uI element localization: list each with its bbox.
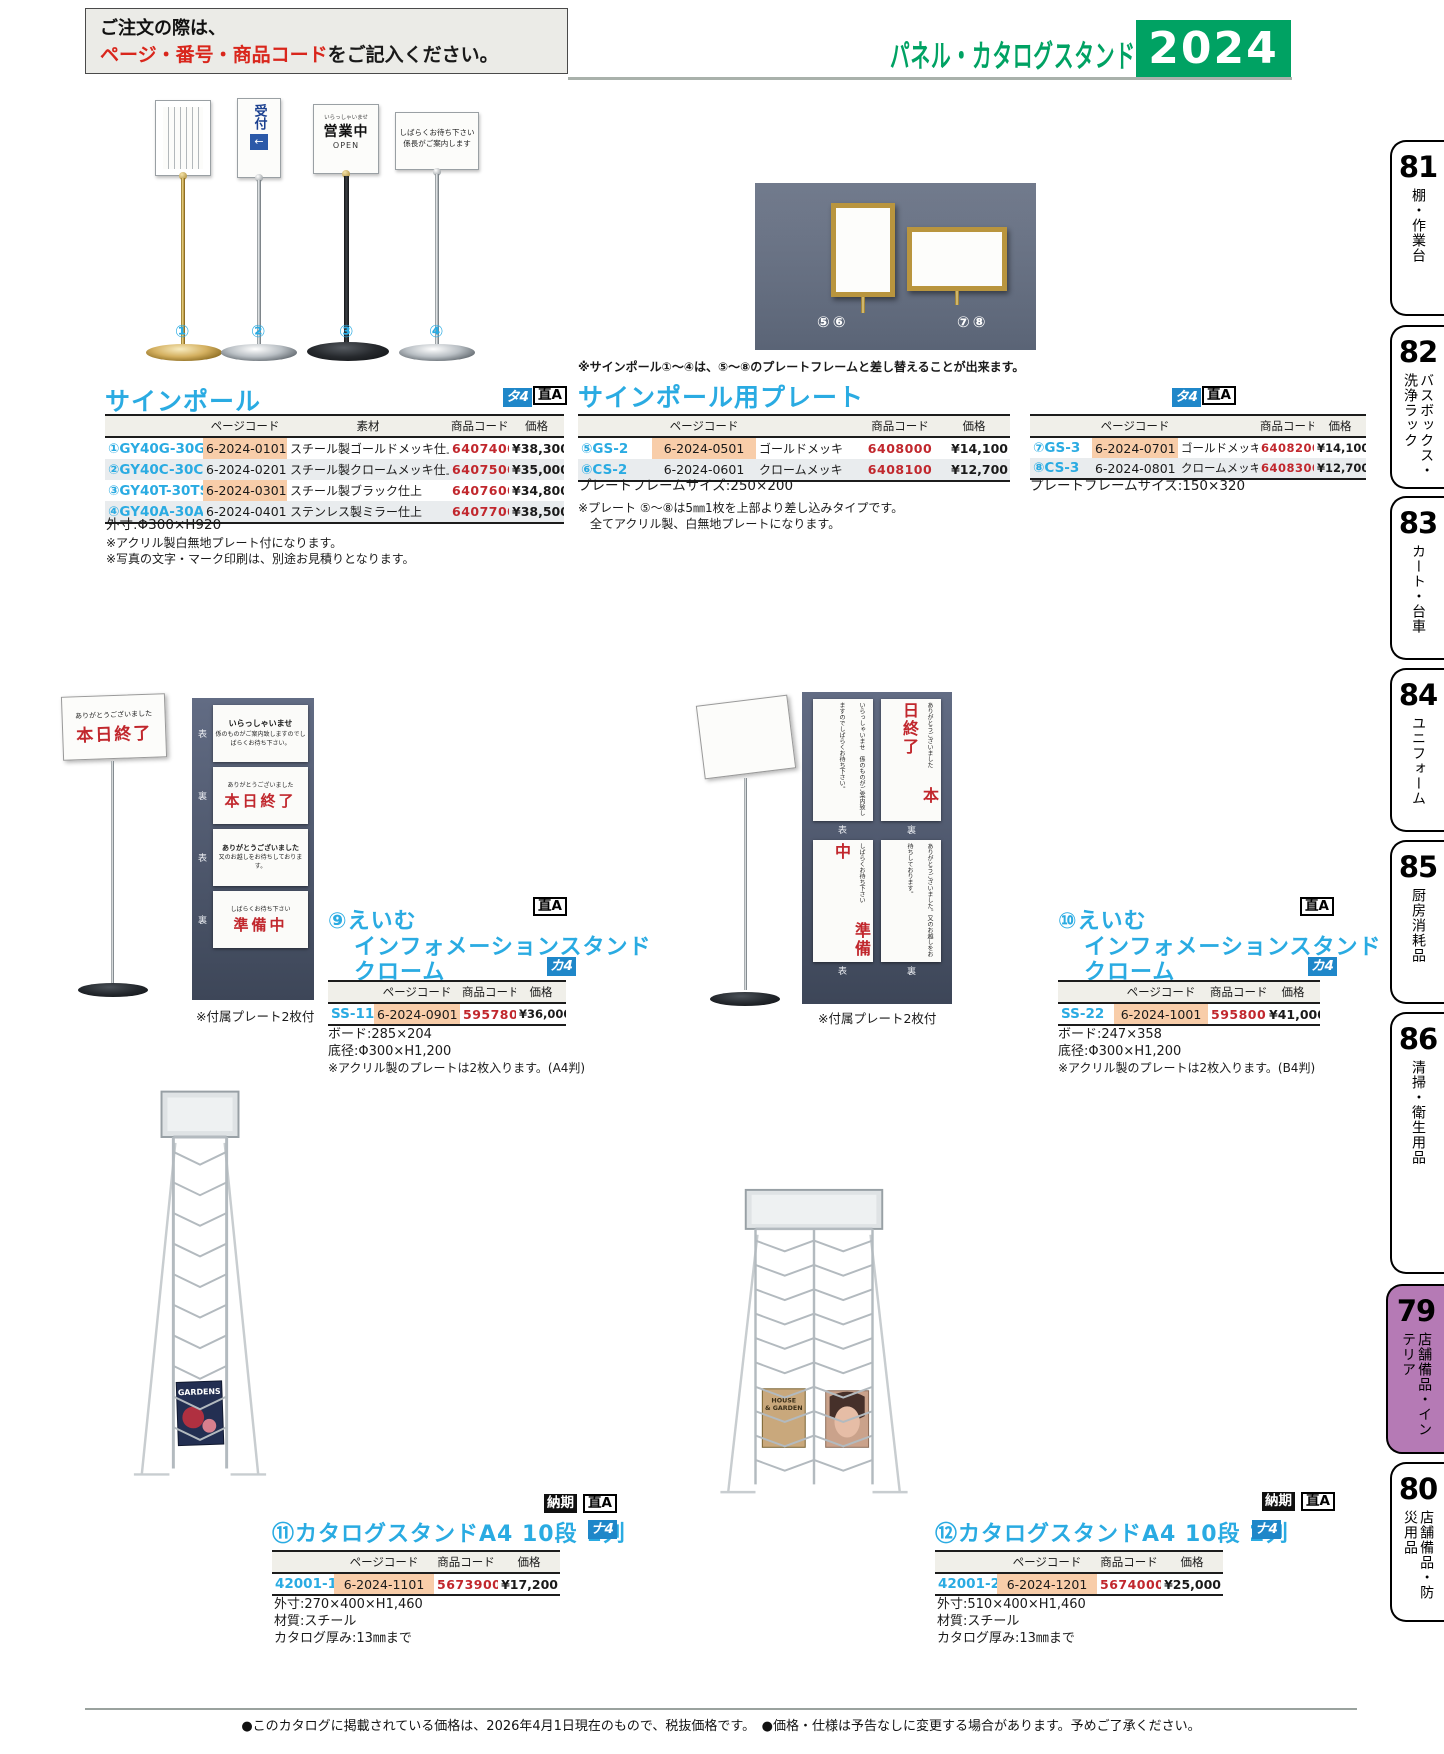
footer-disclaimer: ●このカタログに掲載されている価格は、2026年4月1日現在のもので、税抜価格で… [85,1715,1357,1734]
magazine-cover: GARDENS [176,1381,224,1446]
plate-4-line1: しばらくお待ち下さい [396,127,478,138]
col-blank [1030,415,1092,437]
col-page-code: ページコード [374,981,460,1003]
col-blank [756,415,862,437]
order-instruction-tail: をご記入ください。 [328,44,499,66]
signpole-plate-1 [155,100,211,176]
base-chrome [221,344,297,361]
side-label: 裏 [907,823,916,836]
tab-label: 店舗備品・防災用品 [1402,1510,1434,1614]
gold-frame-landscape [907,227,1007,291]
item-code: 6408300 [1258,458,1314,479]
catalog-index-badge: カ4 [547,957,576,976]
price: ¥38,300 [509,437,564,459]
board-plate: ありがとうございました 本日終了 [213,767,308,824]
plate-small-text: ありがとうございました。又のお越しをお待ちしております。 [906,843,933,957]
col-item-code: 商品コード [449,415,509,437]
board-plate: しばらくお待ち下さい 準備中 [213,891,308,948]
table-header-row: ページコード 素材 商品コード 価格 [105,415,564,437]
info10-table: ページコード 商品コード 価格 SS-22 6-2024-1001 595800… [1058,980,1320,1026]
board-plate-vertical: いらっしゃいませ 係のものがご案内致しますのでしばらくお待ち下さい。 [813,699,873,821]
col-blank [272,1551,334,1573]
plates-table-right: ページコード 商品コード 価格 ⑦GS-3 6-2024-0701 ゴールドメッ… [1030,414,1366,480]
side-label: 表 [838,964,847,977]
plate-small-text: いらっしゃいませ 係のものがご案内致しますのでしばらくお待ち下さい。 [838,702,865,816]
plate-product-photo: ⑤⑥ ⑦⑧ [755,183,1036,350]
footer-divider [85,1708,1357,1710]
table-row: ⑦GS-3 6-2024-0701 ゴールドメッキ 6408200 ¥14,10… [1030,437,1366,458]
price: ¥41,000 [1266,1003,1320,1025]
model-code: ⑧CS-3 [1030,458,1092,479]
model-code: SS-22 [1058,1003,1114,1025]
item-code: 6408200 [1258,437,1314,458]
note: ※写真の文字・マーク印刷は、別途お見積りとなります。 [106,551,415,568]
col-blank [105,415,203,437]
gold-frame-portrait [831,203,895,297]
plate-3-line2: 営業中 [314,121,378,141]
col-page-code: ページコード [1092,415,1178,437]
col-price: 価格 [1161,1551,1223,1573]
side-label: 表 [838,823,847,836]
direct-delivery-badge: 直A [1301,1492,1335,1511]
included-plates-caption: ※付属プレート2枚付 [818,1010,936,1028]
sidebar-tab-82[interactable]: 82 バスボックス・洗浄ラック [1390,325,1444,489]
plate-2-text: 受付 [250,104,269,130]
stand-base [78,983,148,997]
plate-title: いらっしゃいませ [215,719,306,729]
tab-number: 86 [1399,1022,1437,1056]
section-title-signpole: サインポール [105,382,261,418]
board-row: 裏 ありがとうございました 本日終了 [198,767,308,824]
plate-title: ありがとうございました [215,781,306,790]
catalog-index-badge: ナ4 [1252,1520,1281,1539]
item-code: 5957800 [460,1003,516,1025]
item-code: 6407400 [449,437,509,459]
col-item-code: 商品コード [1258,415,1314,437]
material: クロームメッキ [1178,458,1258,479]
col-page-code: ページコード [652,415,756,437]
board-row: いらっしゃいませ 係のものがご案内致しますのでしばらくお待ち下さい。 ありがとう… [808,699,946,821]
model-code: ⑦GS-3 [1030,437,1092,458]
photo-item-numbers-5-6: ⑤⑥ [817,313,848,331]
spec-thickness: カタログ厚み:13㎜まで [274,1630,412,1648]
col-blank [1058,981,1114,1003]
price: ¥35,000 [509,459,564,480]
material: ゴールドメッキ [756,437,862,459]
spec-material: 材質:スチール [274,1613,356,1631]
board-label-row: 表 裏 [808,964,946,977]
page-code: 6-2024-0901 [374,1003,460,1025]
item-code: 6407700 [449,501,509,523]
catalog-stand-1col-image: GARDENS [126,1085,274,1485]
plate-small-text: しばらくお待ち下さい [858,843,865,903]
pole-gold [181,178,185,346]
tab-label: 清掃・衛生用品 [1410,1060,1426,1165]
model-code: ⑤GS-2 [578,437,652,459]
catalog-stand-2col-image: HOUSE & GARDEN [716,1186,912,1498]
model-code: 42001-2 [935,1573,997,1595]
item-code: 5674000 [1097,1573,1161,1595]
spec-base: 底径:Φ300×H1,200 [1058,1043,1181,1061]
col-blank [578,415,652,437]
stand-pole [111,761,114,985]
item-number-3: ③ [339,322,353,342]
note: ※アクリル製のプレートは2枚入ります。(A4判) [328,1060,585,1077]
tab-label: 厨房消耗品 [1410,888,1426,963]
spec-board: ボード:285×204 [328,1026,432,1044]
catalog-index-badge: カ4 [1308,957,1337,976]
table-row: ②GY40C-30CS 6-2024-0201 スチール製クロームメッキ仕上 6… [105,459,564,480]
table-row: ⑤GS-2 6-2024-0501 ゴールドメッキ 6408000 ¥14,10… [578,437,1010,459]
price: ¥14,100 [938,437,1010,459]
board-plate: ありがとうございました 又のお越しをお待ちしております。 [213,829,308,886]
plate-small-text: ありがとうございました [926,702,933,768]
table-row: SS-22 6-2024-1001 5958000 ¥41,000 [1058,1003,1320,1025]
model-code: ③GY40T-30TS [105,480,203,501]
page-code: 6-2024-0201 [203,459,287,480]
tab-label: 店舗備品・インテリア [1400,1332,1432,1446]
board-row: 裏 しばらくお待ち下さい 準備中 [198,891,308,948]
frame-stem [861,297,865,313]
sidebar-tab-81[interactable]: 81 棚・作業台 [1390,140,1444,316]
table-header-row: ページコード 商品コード 価格 [328,981,566,1003]
plate-3-line1: いらっしゃいませ [314,113,378,121]
page-code: 6-2024-0101 [203,437,287,459]
base-black [307,342,389,361]
col-item-code: 商品コード [1097,1551,1161,1573]
col-item-code: 商品コード [1208,981,1266,1003]
table-header-row: ページコード 商品コード 価格 [1030,415,1366,437]
header-divider [568,77,1292,80]
spec-material: 材質:スチール [937,1613,1019,1631]
sidebar-tab-86[interactable]: 86 清掃・衛生用品 [1390,1012,1444,1274]
plate-4-line2: 係長がご案内します [396,138,478,149]
col-price: 価格 [498,1551,560,1573]
signpole-plate-2: 受付 ← [237,98,281,178]
tab-number: 82 [1399,335,1437,369]
page-code: 6-2024-1201 [997,1573,1097,1595]
price: ¥12,700 [1314,458,1366,479]
tab-number: 85 [1399,850,1437,884]
item-number-4: ④ [429,322,443,342]
plate-board-9: 表 いらっしゃいませ 係のものがご案内致しますのでしばらくお待ち下さい。 裏 あ… [192,698,314,1000]
catalog-index-badge: タ4 [503,388,532,407]
price: ¥25,000 [1161,1573,1223,1595]
page-code: 6-2024-0701 [1092,437,1178,458]
side-label: 表 [198,727,210,740]
tab-number: 80 [1399,1472,1437,1506]
catalog-index-badge: タ4 [1172,388,1201,407]
plate-board-10: いらっしゃいませ 係のものがご案内致しますのでしばらくお待ち下さい。 ありがとう… [802,692,952,1004]
col-material: 素材 [287,415,449,437]
col-item-code: 商品コード [460,981,516,1003]
table-header-row: ページコード 商品コード 価格 [272,1551,560,1573]
plate-lines: 係のものがご案内致しますのでしばらくお待ち下さい。 [215,730,306,748]
price: ¥34,800 [509,480,564,501]
board-row: 表 ありがとうございました 又のお越しをお待ちしております。 [198,829,308,886]
plate-big-text: 準備中 [832,843,871,958]
board-label-row: 表 裏 [808,823,946,836]
col-price: 価格 [938,415,1010,437]
board-plate-vertical: ありがとうございました 本日終了 [881,699,941,821]
price: ¥12,700 [938,459,1010,481]
note: ※アクリル製白無地プレート付になります。 [106,535,342,552]
table-row: 42001-2 6-2024-1201 5674000 ¥25,000 [935,1573,1223,1595]
note: 全てアクリル製、白無地プレートになります。 [590,516,840,533]
material: ゴールドメッキ [1178,437,1258,458]
tab-label: ユニフォーム [1410,716,1426,806]
spec-base: 底径:Φ300×H1,200 [328,1043,451,1061]
price: ¥36,000 [516,1003,566,1025]
tab-label: 棚・作業台 [1410,188,1426,263]
signpole-table: ページコード 素材 商品コード 価格 ①GY40G-30GS 6-2024-01… [105,414,564,524]
col-page-code: ページコード [334,1551,434,1573]
board-row: 表 いらっしゃいませ 係のものがご案内致しますのでしばらくお待ち下さい。 [198,705,308,762]
magazine-title-line1: HOUSE [771,1397,796,1404]
page-code: 6-2024-1001 [1114,1003,1208,1025]
table-row: ①GY40G-30GS 6-2024-0101 スチール製ゴールドメッキ仕上 6… [105,437,564,459]
spec-dimensions: 外寸:510×400×H1,460 [937,1596,1086,1614]
stand-pole [744,778,747,990]
table-header-row: ページコード 商品コード 価格 [578,415,1010,437]
item-code: 6407600 [449,480,509,501]
sidebar-tab-85[interactable]: 85 厨房消耗品 [1390,840,1444,1004]
col-price: 価格 [1314,415,1366,437]
model-code: SS-11 [328,1003,374,1025]
section-title-catalog2: ⑫カタログスタンドA4 10段 2列 [935,1516,1289,1548]
signpole-plate-4: しばらくお待ち下さい 係長がご案内します [395,112,479,170]
col-blank [328,981,374,1003]
table-header-row: ページコード 商品コード 価格 [935,1551,1223,1573]
tab-number: 81 [1399,150,1437,184]
model-code: ①GY40G-30GS [105,437,203,459]
delivery-time-badge: 納期 [1262,1492,1295,1511]
plate-title: ありがとうございました [215,844,306,853]
col-page-code: ページコード [203,415,287,437]
side-label: 裏 [198,913,210,926]
page-code: 6-2024-0301 [203,480,287,501]
sidebar-tab-80[interactable]: 80 店舗備品・防災用品 [1390,1462,1444,1622]
col-item-code: 商品コード [862,415,938,437]
item-code: 5673900 [434,1573,498,1595]
col-price: 価格 [509,415,564,437]
frame-size-note-right: プレートフレームサイズ:150×320 [1030,477,1245,495]
info9-table: ページコード 商品コード 価格 SS-11 6-2024-0901 595780… [328,980,566,1026]
plate-big-text: 本日終了 [900,702,939,805]
pole-mirror [435,174,439,346]
col-page-code: ページコード [1114,981,1208,1003]
direct-delivery-badge: 直A [583,1494,617,1513]
direct-delivery-badge: 直A [1202,386,1236,405]
order-instruction-line1: ご注文の際は、 [100,16,567,42]
catalog-index-badge: ナ4 [588,1520,617,1539]
tab-label: カート・台車 [1410,544,1426,634]
info-stand-10-image [700,700,800,1010]
board-plate: いらっしゃいませ 係のものがご案内致しますのでしばらくお待ち下さい。 [213,705,308,762]
table-row: ⑧CS-3 6-2024-0801 クロームメッキ 6408300 ¥12,70… [1030,458,1366,479]
tab-label: バスボックス・洗浄ラック [1402,373,1434,481]
stand-base [710,992,780,1006]
catalog-page: ご注文の際は、 ページ・番号・商品コードをご記入ください。 パネル・カタログスタ… [0,0,1444,1754]
pole-black [344,176,349,344]
plates-table-left: ページコード 商品コード 価格 ⑤GS-2 6-2024-0501 ゴールドメッ… [578,414,1010,482]
side-label: 表 [198,851,210,864]
item-code: 6408000 [862,437,938,459]
included-plates-caption: ※付属プレート2枚付 [196,1008,314,1026]
plate-compat-note: ※サインポール①〜④は、⑤〜⑧のプレートフレームと差し替えることが出来ます。 [578,359,1024,376]
photo-item-numbers-7-8: ⑦⑧ [957,313,988,331]
plate-title: しばらくお待ち下さい [215,905,306,914]
item-code: 6407500 [449,459,509,480]
model-code: ②GY40C-30CS [105,459,203,480]
table-row: 42001-1 6-2024-1101 5673900 ¥17,200 [272,1573,560,1595]
price: ¥38,500 [509,501,564,523]
plate-lines: 又のお越しをお待ちしております。 [215,853,306,871]
delivery-time-badge: 納期 [544,1494,577,1513]
item-code: 5958000 [1208,1003,1266,1025]
material: スチール製クロームメッキ仕上 [287,459,449,480]
page-title: パネル・カタログスタンド [890,31,1128,76]
table-header-row: ページコード 商品コード 価格 [1058,981,1320,1003]
catalog1-table: ページコード 商品コード 価格 42001-1 6-2024-1101 5673… [272,1550,560,1596]
spec-dimensions: 外寸:270×400×H1,460 [274,1596,423,1614]
signpole-product-image: ① 受付 ← ② いらっしゃいませ 営業中 OPEN ③ しばらくお待ち下さい … [133,88,511,380]
item-number-2: ② [251,322,265,342]
material: スチール製ゴールドメッキ仕上 [287,437,449,459]
magazine-title: GARDENS [178,1387,221,1397]
price: ¥17,200 [498,1573,560,1595]
board-plate-vertical: しばらくお待ち下さい 準備中 [813,840,873,962]
page-code: 6-2024-0801 [1092,458,1178,479]
signpole-plate-3: いらっしゃいませ 営業中 OPEN [313,104,379,174]
item-number-1: ① [175,322,189,342]
spec-board: ボード:247×358 [1058,1026,1162,1044]
order-instruction-line2: ページ・番号・商品コードをご記入ください。 [100,42,567,70]
direct-delivery-badge: 直A [1300,897,1334,916]
plate-3-line3: OPEN [314,141,378,150]
price: ¥14,100 [1314,437,1366,458]
sidebar-tab-79-active[interactable]: 79 店舗備品・インテリア [1386,1284,1444,1454]
table-row: ③GY40T-30TS 6-2024-0301 スチール製ブラック仕上 6407… [105,480,564,501]
base-mirror [399,344,475,361]
stand-plate: ありがとうございました 本日終了 [61,693,167,761]
spec-dimensions: 外寸:Φ300×H920 [106,516,221,534]
tab-number: 79 [1397,1294,1435,1328]
order-instruction-highlight: ページ・番号・商品コード [100,44,328,66]
plate-big-text: 準備中 [215,914,306,935]
board-row: しばらくお待ち下さい 準備中 ありがとうございました。又のお越しをお待ちしており… [808,840,946,962]
magazine-title-line2: & GARDEN [765,1405,803,1412]
page-code: 6-2024-1101 [334,1573,434,1595]
side-label: 裏 [198,789,210,802]
frame-size-note-left: プレートフレームサイズ:250×200 [578,477,793,495]
material: スチール製ブラック仕上 [287,480,449,501]
item-code: 6408100 [862,459,938,481]
plate-big-text: 本日終了 [215,790,306,811]
direct-delivery-badge: 直A [533,386,567,405]
info-stand-9-image: ありがとうございました 本日終了 [62,695,172,1005]
base-gold [146,344,222,361]
direct-delivery-badge: 直A [533,897,567,916]
tab-number: 84 [1399,678,1437,712]
col-item-code: 商品コード [434,1551,498,1573]
board-plate-vertical: ありがとうございました。又のお越しをお待ちしております。 [881,840,941,962]
order-instruction-box: ご注文の際は、 ページ・番号・商品コードをご記入ください。 [85,8,568,74]
model-code: 42001-1 [272,1573,334,1595]
tab-number: 83 [1399,506,1437,540]
page-code: 6-2024-0501 [652,437,756,459]
note: ※プレート ⑤〜⑧は5㎜1枚を上部より差し込みタイプです。 [578,500,903,517]
table-row: SS-11 6-2024-0901 5957800 ¥36,000 [328,1003,566,1025]
frame-stem [955,291,959,305]
stand-plate-big-text: 本日終了 [63,718,166,747]
note: ※アクリル製のプレートは2枚入ります。(B4判) [1058,1060,1315,1077]
left-arrow-icon: ← [250,134,268,150]
side-label: 裏 [907,964,916,977]
stand-plate [696,695,796,780]
col-blank [935,1551,997,1573]
col-price: 価格 [1266,981,1320,1003]
catalog2-table: ページコード 商品コード 価格 42001-2 6-2024-1201 5674… [935,1550,1223,1596]
col-page-code: ページコード [997,1551,1097,1573]
material: ステンレス製ミラー仕上 [287,501,449,523]
section-title-catalog1: ⑪カタログスタンドA4 10段 1列 [272,1516,626,1548]
col-price: 価格 [516,981,566,1003]
section-title-plates: サインポール用プレート [578,378,864,414]
sidebar-tab-84[interactable]: 84 ユニフォーム [1390,668,1444,832]
year-badge: 2024 [1136,20,1291,78]
spec-thickness: カタログ厚み:13㎜まで [937,1630,1075,1648]
col-blank [1178,415,1258,437]
sidebar-tab-83[interactable]: 83 カート・台車 [1390,496,1444,660]
